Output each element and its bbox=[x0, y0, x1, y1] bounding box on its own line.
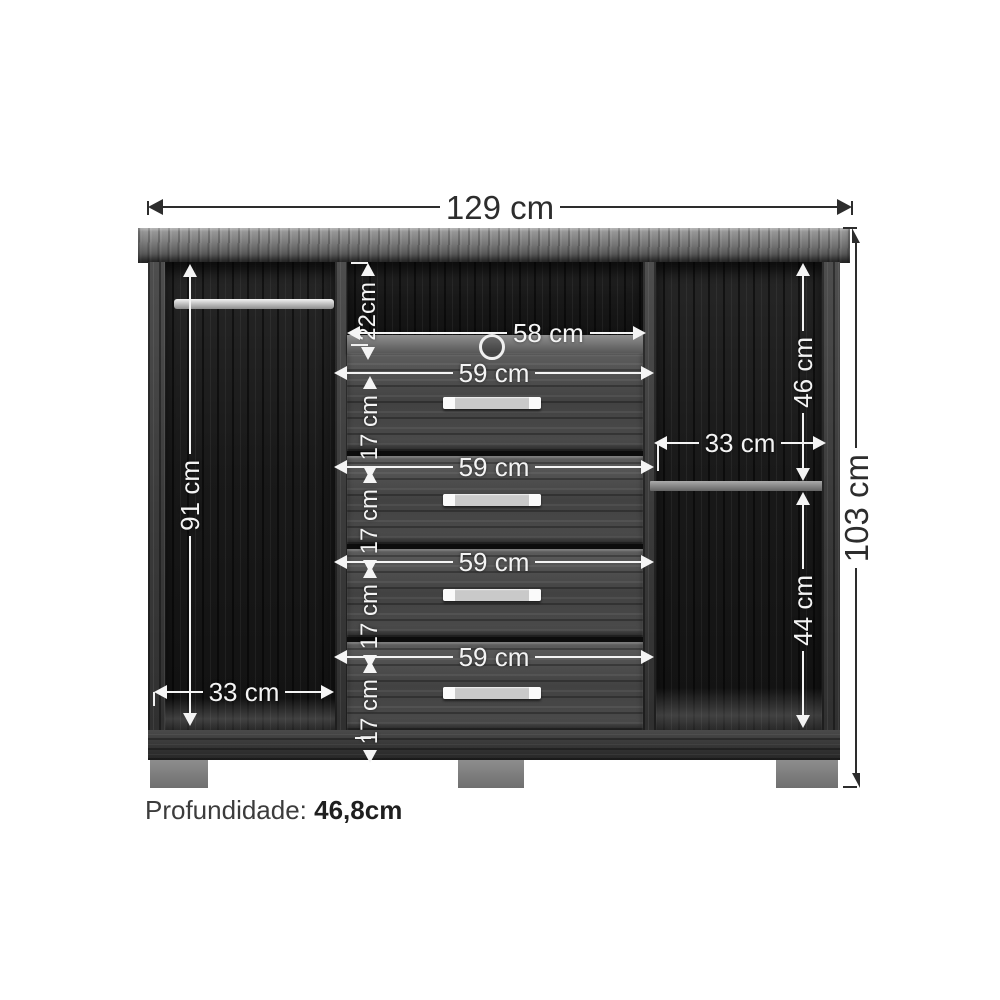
dim-line bbox=[590, 332, 633, 334]
dim-drawer-pitch-4: 17 cm bbox=[353, 660, 387, 738]
dim-left-inner-height: 91 cm bbox=[173, 264, 207, 726]
dim-line bbox=[285, 691, 321, 693]
dim-tick bbox=[351, 262, 368, 264]
depth-note-value: 46,8cm bbox=[314, 795, 402, 825]
drawer-handle-4 bbox=[443, 687, 541, 699]
dim-tick bbox=[843, 786, 857, 788]
dim-drawer-width-3-label: 59 cm bbox=[453, 549, 536, 575]
dim-line bbox=[781, 442, 813, 444]
drawer-handle-3 bbox=[443, 589, 541, 601]
depth-note: Profundidade: 46,8cm bbox=[145, 795, 402, 826]
dim-drawer-pitch-1-label: 17 cm bbox=[358, 389, 382, 466]
foot-right bbox=[776, 760, 838, 788]
dim-tick bbox=[153, 692, 155, 706]
dim-line bbox=[360, 332, 507, 334]
dim-overall-width: 129 cm bbox=[148, 190, 852, 224]
dim-drawer-width-2-label: 59 cm bbox=[453, 454, 536, 480]
dim-drawer-width-1-label: 59 cm bbox=[453, 360, 536, 386]
cable-hole bbox=[479, 334, 505, 360]
right-shelf bbox=[650, 481, 824, 491]
dim-drawer-pitch-1: 17 cm bbox=[353, 376, 387, 462]
dim-line bbox=[167, 691, 203, 693]
foot-left bbox=[150, 760, 208, 788]
plinth bbox=[148, 730, 840, 760]
dim-line bbox=[855, 568, 857, 773]
dim-line bbox=[802, 505, 804, 569]
dim-left-bottom-width: 33 cm bbox=[154, 679, 334, 705]
dim-line bbox=[535, 561, 641, 563]
dim-line bbox=[163, 206, 440, 208]
top-board bbox=[138, 228, 850, 263]
dim-line bbox=[535, 656, 641, 658]
dim-left-inner-height-label: 91 cm bbox=[177, 454, 203, 537]
dim-line bbox=[802, 651, 804, 715]
dim-drawer-pitch-2-label: 17 cm bbox=[358, 483, 382, 560]
dim-right-lower-height: 44 cm bbox=[786, 492, 820, 728]
diagram-canvas: 129 cm 103 cm 91 cm 22cm 58 cm 59 cm 59 … bbox=[0, 0, 1000, 1000]
dim-left-bottom-width-label: 33 cm bbox=[203, 679, 286, 705]
dim-overall-height-label: 103 cm bbox=[840, 448, 873, 568]
dim-overall-height: 103 cm bbox=[839, 228, 873, 788]
dim-line bbox=[535, 466, 641, 468]
dim-tick bbox=[355, 737, 371, 739]
drawer-handle-1 bbox=[443, 397, 541, 409]
dim-niche-width-label: 58 cm bbox=[507, 320, 590, 346]
dim-line bbox=[560, 206, 837, 208]
dim-overall-width-label: 129 cm bbox=[440, 191, 560, 224]
dim-right-inner-width-label: 33 cm bbox=[699, 430, 782, 456]
dim-tick bbox=[851, 201, 853, 215]
dim-line bbox=[855, 243, 857, 448]
dim-tick bbox=[147, 201, 149, 215]
dim-right-inner-width: 33 cm bbox=[654, 430, 826, 456]
dim-right-upper-height-label: 46 cm bbox=[790, 331, 816, 414]
dim-line bbox=[667, 442, 699, 444]
dim-right-lower-height-label: 44 cm bbox=[790, 569, 816, 652]
dim-connector bbox=[657, 443, 659, 471]
dim-line bbox=[347, 372, 453, 374]
drawer-handle-2 bbox=[443, 494, 541, 506]
dim-line bbox=[189, 277, 191, 454]
left-side-panel bbox=[148, 262, 165, 730]
dim-drawer-pitch-3: 17 cm bbox=[353, 565, 387, 653]
dim-tick bbox=[843, 227, 857, 229]
dim-drawer-pitch-3-label: 17 cm bbox=[358, 578, 382, 655]
dim-line bbox=[535, 372, 641, 374]
depth-note-label: Profundidade: bbox=[145, 795, 307, 825]
dim-line bbox=[802, 276, 804, 331]
dim-drawer-pitch-2: 17 cm bbox=[353, 470, 387, 558]
foot-center bbox=[458, 760, 524, 788]
dim-drawer-width-4-label: 59 cm bbox=[453, 644, 536, 670]
